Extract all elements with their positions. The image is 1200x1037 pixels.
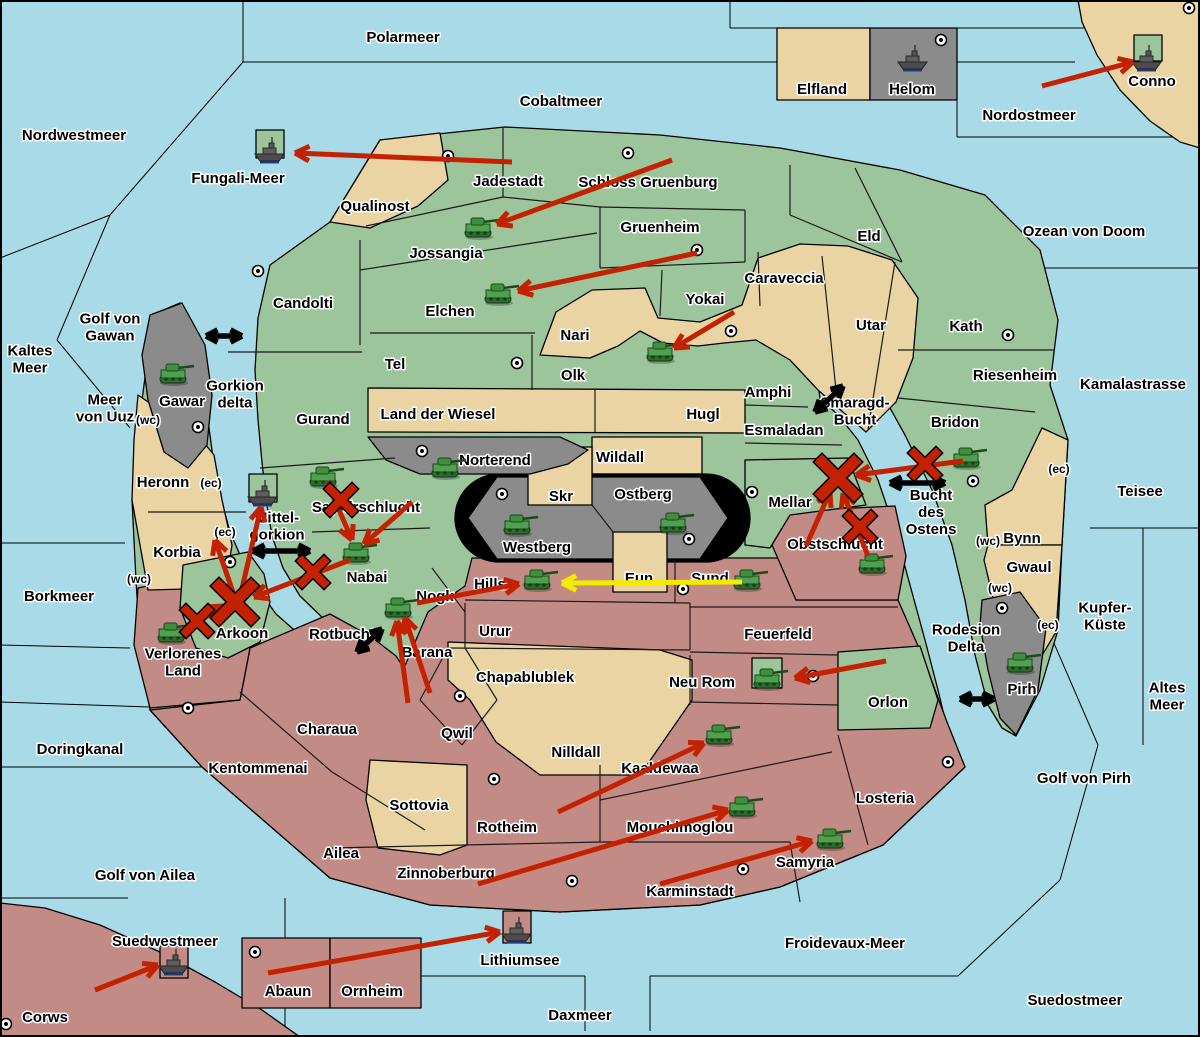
sea-label-Froidevaux-Meer: Froidevaux-Meer [785, 935, 905, 952]
coast-mark-(wc): (wc) [988, 581, 1012, 595]
label-text: Bynn [1003, 530, 1041, 547]
coast-mark-(ec): (ec) [200, 476, 221, 490]
region-label-Helom: Helom [889, 81, 935, 98]
label-text: Norterend [459, 452, 531, 469]
tank-turret [391, 598, 404, 605]
region-label-Mellar: Mellar [768, 494, 812, 511]
supply-center-icon [193, 422, 204, 433]
label-text: Doringkanal [37, 741, 124, 758]
label-text: Heronn [137, 474, 190, 491]
supply-center-icon [253, 266, 264, 277]
label-text: Elchen [425, 303, 474, 320]
supply-center-icon [497, 489, 508, 500]
tank-wheel [321, 480, 325, 484]
region-label-Gurand: Gurand [296, 411, 349, 428]
region-label-Heronn: Heronn [137, 474, 190, 491]
region-obstschlucht[interactable] [770, 506, 906, 600]
label-text: Gorkion [206, 377, 264, 394]
sea-label-OzeanvonDoom: Ozean von Doom [1023, 223, 1146, 240]
region-label-Abaun: Abaun [265, 983, 312, 1000]
tank-wheel [745, 583, 749, 587]
tank-wheel [450, 471, 454, 475]
region-label-Olk: Olk [561, 367, 586, 384]
label-text: Ailea [323, 845, 360, 862]
label-text: Cobaltmeer [520, 93, 603, 110]
label-text: Zinnoberburg [397, 865, 495, 882]
label-text: Golf von Ailea [95, 867, 196, 884]
tank-wheel [522, 528, 526, 532]
label-text: Fungali-Meer [191, 170, 285, 187]
label-text: Teisee [1117, 483, 1163, 500]
region-label-Ostberg: Ostberg [614, 486, 672, 503]
supply-center-icon [726, 326, 737, 337]
label-text: (wc) [988, 581, 1012, 595]
label-text: (ec) [214, 525, 235, 539]
supply-center-icon [684, 534, 695, 545]
label-text: Sottovia [389, 797, 449, 814]
tank-wheel [710, 738, 714, 742]
label-text: Urur [479, 623, 511, 640]
tank-turret [959, 448, 972, 455]
tank-turret [735, 797, 748, 804]
tank-wheel [658, 355, 662, 359]
region-label-Gwaul: Gwaul [1006, 559, 1051, 576]
tank-wheel [361, 556, 365, 560]
game-map[interactable]: PolarmeerCobaltmeerNordwestmeerNordostme… [0, 0, 1200, 1037]
ship-hull [502, 934, 531, 941]
supply-center-icon [1003, 330, 1014, 341]
label-text: Gwaul [1006, 559, 1051, 576]
sea-label-Suedostmeer: Suedostmeer [1027, 992, 1122, 1009]
sea-label-Kupfer-Küste: Kupfer-Küste [1078, 599, 1131, 633]
label-text: Jossangia [409, 245, 483, 262]
region-label-Nari: Nari [560, 327, 589, 344]
region-label-Chapablublek: Chapablublek [476, 669, 575, 686]
tank-wheel [971, 461, 975, 465]
ship-superstructure [1140, 56, 1153, 62]
supply-center-dot [750, 490, 754, 494]
tank-wheel [176, 636, 180, 640]
tank-wheel [515, 528, 519, 532]
tank-wheel [178, 377, 182, 381]
tank-wheel [765, 682, 769, 686]
supply-center-dot [1000, 606, 1004, 610]
label-text: Bridon [931, 414, 979, 431]
label-text: Pirh [1007, 681, 1036, 698]
tank-wheel [664, 526, 668, 530]
label-text: Kamalastrasse [1080, 376, 1186, 393]
supply-center-icon [512, 358, 523, 369]
region-label-Jossangia: Jossangia [409, 245, 483, 262]
label-text: Helom [889, 81, 935, 98]
label-text: Samyria [776, 854, 835, 871]
label-text: (wc) [976, 534, 1000, 548]
label-text: Feuerfeld [744, 626, 812, 643]
supply-center-icon [997, 603, 1008, 614]
sea-label-Cobaltmeer: Cobaltmeer [520, 93, 603, 110]
tank-wheel [528, 583, 532, 587]
sea-label-Kamalastrasse: Kamalastrasse [1080, 376, 1186, 393]
tank-wheel [496, 297, 500, 301]
label-text: Yokai [686, 291, 725, 308]
label-text: Küste [1084, 616, 1126, 633]
supply-center-dot [458, 694, 462, 698]
coast-mark-(wc): (wc) [127, 572, 151, 586]
ship-tower [1146, 51, 1151, 56]
label-text: Land der Wiesel [381, 406, 496, 423]
label-text: Land [165, 662, 201, 679]
supply-center-dot [687, 537, 691, 541]
region-label-Gruenheim: Gruenheim [620, 219, 699, 236]
region-label-Ailea: Ailea [323, 845, 360, 862]
tank-turret [349, 543, 362, 550]
tank-wheel [503, 297, 507, 301]
label-text: Ozean von Doom [1023, 223, 1146, 240]
tank-wheel [169, 636, 173, 640]
tank-wheel [1025, 666, 1029, 670]
region-label-Norterend: Norterend [459, 452, 531, 469]
region-label-Nilldall: Nilldall [551, 744, 600, 761]
label-text: Tel [385, 356, 406, 373]
supply-center-dot [626, 151, 630, 155]
supply-center-icon [623, 148, 634, 159]
ship-superstructure [510, 928, 523, 934]
label-text: Meer [87, 391, 122, 408]
sea-label-Nordwestmeer: Nordwestmeer [22, 127, 126, 144]
tank-wheel [752, 583, 756, 587]
sea-label-GolfvonGawan: Golf vonGawan [80, 310, 141, 344]
label-text: Wildall [596, 449, 644, 466]
region-label-Ornheim: Ornheim [341, 983, 403, 1000]
region-label-Nabai: Nabai [347, 569, 388, 586]
tank-wheel [403, 611, 407, 615]
tank-wheel [1018, 666, 1022, 670]
supply-center-dot [681, 587, 685, 591]
supply-center-icon [417, 446, 428, 457]
label-text: (ec) [1048, 462, 1069, 476]
label-text: Conno [1128, 73, 1175, 90]
supply-center-dot [1006, 333, 1010, 337]
supply-center-dot [946, 760, 950, 764]
label-text: Westberg [503, 539, 571, 556]
tank-wheel [877, 567, 881, 571]
battle-x-mark [914, 453, 936, 475]
label-text: Rotheim [477, 819, 537, 836]
supply-center-dot [420, 449, 424, 453]
ship-superstructure [906, 56, 919, 62]
ship-superstructure [263, 148, 276, 154]
region-label-Jadestadt: Jadestadt [473, 173, 543, 190]
tank-wheel [476, 231, 480, 235]
sea-label-Teisee: Teisee [1117, 483, 1163, 500]
region-label-Korbia: Korbia [153, 544, 201, 561]
label-text: Gruenheim [620, 219, 699, 236]
region-orlon[interactable] [838, 646, 938, 730]
tank-wheel [542, 583, 546, 587]
label-text: Kentommenai [208, 760, 307, 777]
sea-label-Rotbucht: Rotbucht [309, 626, 375, 643]
label-text: Meer [12, 359, 47, 376]
supply-center-icon [1, 1019, 12, 1030]
tank-turret [471, 218, 484, 225]
supply-center-dot [741, 867, 745, 871]
tank-wheel [821, 842, 825, 846]
label-text: Mellar [768, 494, 812, 511]
supply-center-dot [939, 38, 943, 42]
sea-label-Nordostmeer: Nordostmeer [982, 107, 1076, 124]
sea-label-Polarmeer: Polarmeer [366, 29, 440, 46]
tank-wheel [671, 526, 675, 530]
sea-label-Fungali-Meer: Fungali-Meer [191, 170, 285, 187]
label-text: Elfland [797, 81, 847, 98]
region-label-Conno: Conno [1128, 73, 1175, 90]
label-text: Abaun [265, 983, 312, 1000]
region-label-Amphi: Amphi [745, 384, 792, 401]
region-label-Riesenheim: Riesenheim [973, 367, 1057, 384]
coast-mark-(ec): (ec) [214, 525, 235, 539]
label-text: Amphi [745, 384, 792, 401]
map-canvas[interactable]: PolarmeerCobaltmeerNordwestmeerNordostme… [0, 0, 1200, 1037]
region-label-Candolti: Candolti [273, 295, 333, 312]
tank-turret [491, 284, 504, 291]
label-text: Suedwestmeer [112, 933, 218, 950]
sea-label-GolfvonAilea: Golf von Ailea [95, 867, 196, 884]
region-label-Qwil: Qwil [441, 725, 473, 742]
label-text: (ec) [1037, 618, 1058, 632]
region-label-Yokai: Yokai [686, 291, 725, 308]
label-text: Riesenheim [973, 367, 1057, 384]
supply-center-icon [567, 876, 578, 887]
label-text: Rotbucht [309, 626, 375, 643]
tank-wheel [162, 636, 166, 640]
tank-wheel [354, 556, 358, 560]
label-text: Ornheim [341, 983, 403, 1000]
tank-wheel [717, 738, 721, 742]
tank-turret [760, 669, 773, 676]
ship-hull [248, 497, 277, 504]
sea-label-Doringkanal: Doringkanal [37, 741, 124, 758]
tank-wheel [1011, 666, 1015, 670]
label-text: Borkmeer [24, 588, 94, 605]
label-text: delta [217, 394, 253, 411]
ship-superstructure [167, 960, 180, 966]
supply-center-dot [570, 879, 574, 883]
label-text: Hugl [686, 406, 719, 423]
label-text: (wc) [136, 413, 160, 427]
supply-center-icon [1184, 3, 1195, 14]
tank-wheel [314, 480, 318, 484]
label-text: Losteria [856, 790, 915, 807]
region-label-Pirh: Pirh [1007, 681, 1036, 698]
supply-center-dot [729, 329, 733, 333]
supply-center-icon [678, 584, 689, 595]
label-text: Lithiumsee [480, 952, 559, 969]
tank-wheel [436, 471, 440, 475]
tank-wheel [535, 583, 539, 587]
label-text: Eld [857, 228, 880, 245]
label-text: Caraveccia [744, 270, 824, 287]
region-label-Kentommenai: Kentommenai [208, 760, 307, 777]
tank-wheel [828, 842, 832, 846]
ship-hull [159, 966, 188, 973]
label-text: Qwil [441, 725, 473, 742]
tank-wheel [651, 355, 655, 359]
label-text: Daxmeer [548, 1007, 612, 1024]
tank-wheel [508, 528, 512, 532]
sea-label-AltesMeer: AltesMeer [1149, 679, 1186, 713]
tank-wheel [863, 567, 867, 571]
label-text: Nordwestmeer [22, 127, 126, 144]
tank-turret [712, 725, 725, 732]
label-text: Charaua [297, 721, 358, 738]
region-label-Karminstadt: Karminstadt [646, 883, 734, 900]
label-text: Corws [22, 1009, 68, 1026]
tank-wheel [389, 611, 393, 615]
region-label-Caraveccia: Caraveccia [744, 270, 824, 287]
tank-wheel [489, 297, 493, 301]
label-text: Barana [402, 644, 454, 661]
region-label-Gawar: Gawar [159, 393, 205, 410]
label-text: Jadestadt [473, 173, 543, 190]
ship-tower [269, 143, 274, 148]
region-label-Elfland: Elfland [797, 81, 847, 98]
tank-wheel [443, 471, 447, 475]
tank-turret [510, 515, 523, 522]
tank-wheel [758, 682, 762, 686]
tank-turret [316, 467, 329, 474]
label-text: Polarmeer [366, 29, 440, 46]
label-text: von Uuz [76, 408, 134, 425]
tank-wheel [483, 231, 487, 235]
ship-hull [1132, 62, 1161, 69]
region-label-Rotheim: Rotheim [477, 819, 537, 836]
battle-x-mark [186, 610, 208, 632]
label-text: Altes [1149, 679, 1186, 696]
tank-turret [438, 458, 451, 465]
region-label-Bridon: Bridon [931, 414, 979, 431]
coast-mark-(ec): (ec) [1048, 462, 1069, 476]
ship-tower [912, 51, 917, 56]
region-label-LandderWiesel: Land der Wiesel [381, 406, 496, 423]
label-text: Olk [561, 367, 586, 384]
tank-wheel [747, 810, 751, 814]
region-label-Elchen: Elchen [425, 303, 474, 320]
label-text: Neu Rom [669, 674, 735, 691]
tank-wheel [678, 526, 682, 530]
label-text: Qualinost [340, 198, 409, 215]
label-text: Bucht [834, 411, 877, 428]
tank-turret [1013, 653, 1026, 660]
tank-wheel [164, 377, 168, 381]
coast-mark-(wc): (wc) [976, 534, 1000, 548]
label-text: Chapablublek [476, 669, 575, 686]
region-label-Samyria: Samyria [776, 854, 835, 871]
region-label-Charaua: Charaua [297, 721, 358, 738]
region-label-Losteria: Losteria [856, 790, 915, 807]
label-text: Rodesion [932, 621, 1000, 638]
region-label-Westberg: Westberg [503, 539, 571, 556]
label-text: des [918, 504, 944, 521]
supply-center-dot [196, 425, 200, 429]
region-label-Eld: Eld [857, 228, 880, 245]
label-text: Golf von [80, 310, 141, 327]
label-text: Verlorenes [145, 645, 222, 662]
ship-tower [516, 923, 521, 928]
supply-center-dot [1187, 6, 1191, 10]
region-label-Esmaladan: Esmaladan [744, 422, 823, 439]
label-text: Karminstadt [646, 883, 734, 900]
supply-center-dot [253, 950, 257, 954]
region-label-Skr: Skr [549, 488, 573, 505]
region-label-Arkoon: Arkoon [216, 625, 269, 642]
supply-center-icon [455, 691, 466, 702]
supply-center-icon [936, 35, 947, 46]
label-text: Korbia [153, 544, 201, 561]
label-text: Froidevaux-Meer [785, 935, 905, 952]
label-text: Meer [1149, 696, 1184, 713]
label-text: Kupfer- [1078, 599, 1131, 616]
label-text: (wc) [127, 572, 151, 586]
battle-x-mark [849, 516, 871, 538]
region-label-Bynn: Bynn [1003, 530, 1041, 547]
label-text: Ostens [906, 521, 957, 538]
coast-mark-(wc): (wc) [136, 413, 160, 427]
label-text: Bucht [910, 487, 953, 504]
region-label-Tel: Tel [385, 356, 406, 373]
sea-label-Lithiumsee: Lithiumsee [480, 952, 559, 969]
tank-wheel [964, 461, 968, 465]
tank-wheel [665, 355, 669, 359]
supply-center-dot [256, 269, 260, 273]
supply-center-dot [500, 492, 504, 496]
region-label-Utar: Utar [856, 317, 886, 334]
region-label-Qualinost: Qualinost [340, 198, 409, 215]
label-text: Orlon [868, 694, 908, 711]
supply-center-dot [186, 706, 190, 710]
label-text: Gurand [296, 411, 349, 428]
ship-superstructure [256, 491, 269, 497]
tank-wheel [171, 377, 175, 381]
tank-wheel [733, 810, 737, 814]
tank-wheel [740, 810, 744, 814]
ship-tower [173, 955, 178, 960]
region-label-Hugl: Hugl [686, 406, 719, 423]
region-label-Corws: Corws [22, 1009, 68, 1026]
supply-center-icon [250, 947, 261, 958]
supply-center-dot [492, 777, 496, 781]
sea-label-GolfvonPirh: Golf von Pirh [1037, 770, 1131, 787]
label-text: (ec) [200, 476, 221, 490]
supply-center-icon [738, 864, 749, 875]
region-label-Barana: Barana [402, 644, 454, 661]
ship-hull [255, 154, 284, 161]
supply-center-dot [515, 361, 519, 365]
label-text: Suedostmeer [1027, 992, 1122, 1009]
region-label-NeuRom: Neu Rom [669, 674, 735, 691]
label-text: Gawar [159, 393, 205, 410]
ship-tower [262, 486, 267, 491]
label-text: Arkoon [216, 625, 269, 642]
region-label-Sottovia: Sottovia [389, 797, 449, 814]
label-text: Esmaladan [744, 422, 823, 439]
label-text: Nari [560, 327, 589, 344]
tank-turret [740, 570, 753, 577]
sea-label-KaltesMeer: KaltesMeer [7, 342, 52, 376]
label-text: Delta [948, 638, 985, 655]
tank-wheel [835, 842, 839, 846]
tank-wheel [396, 611, 400, 615]
arrow-shaft [562, 582, 742, 583]
